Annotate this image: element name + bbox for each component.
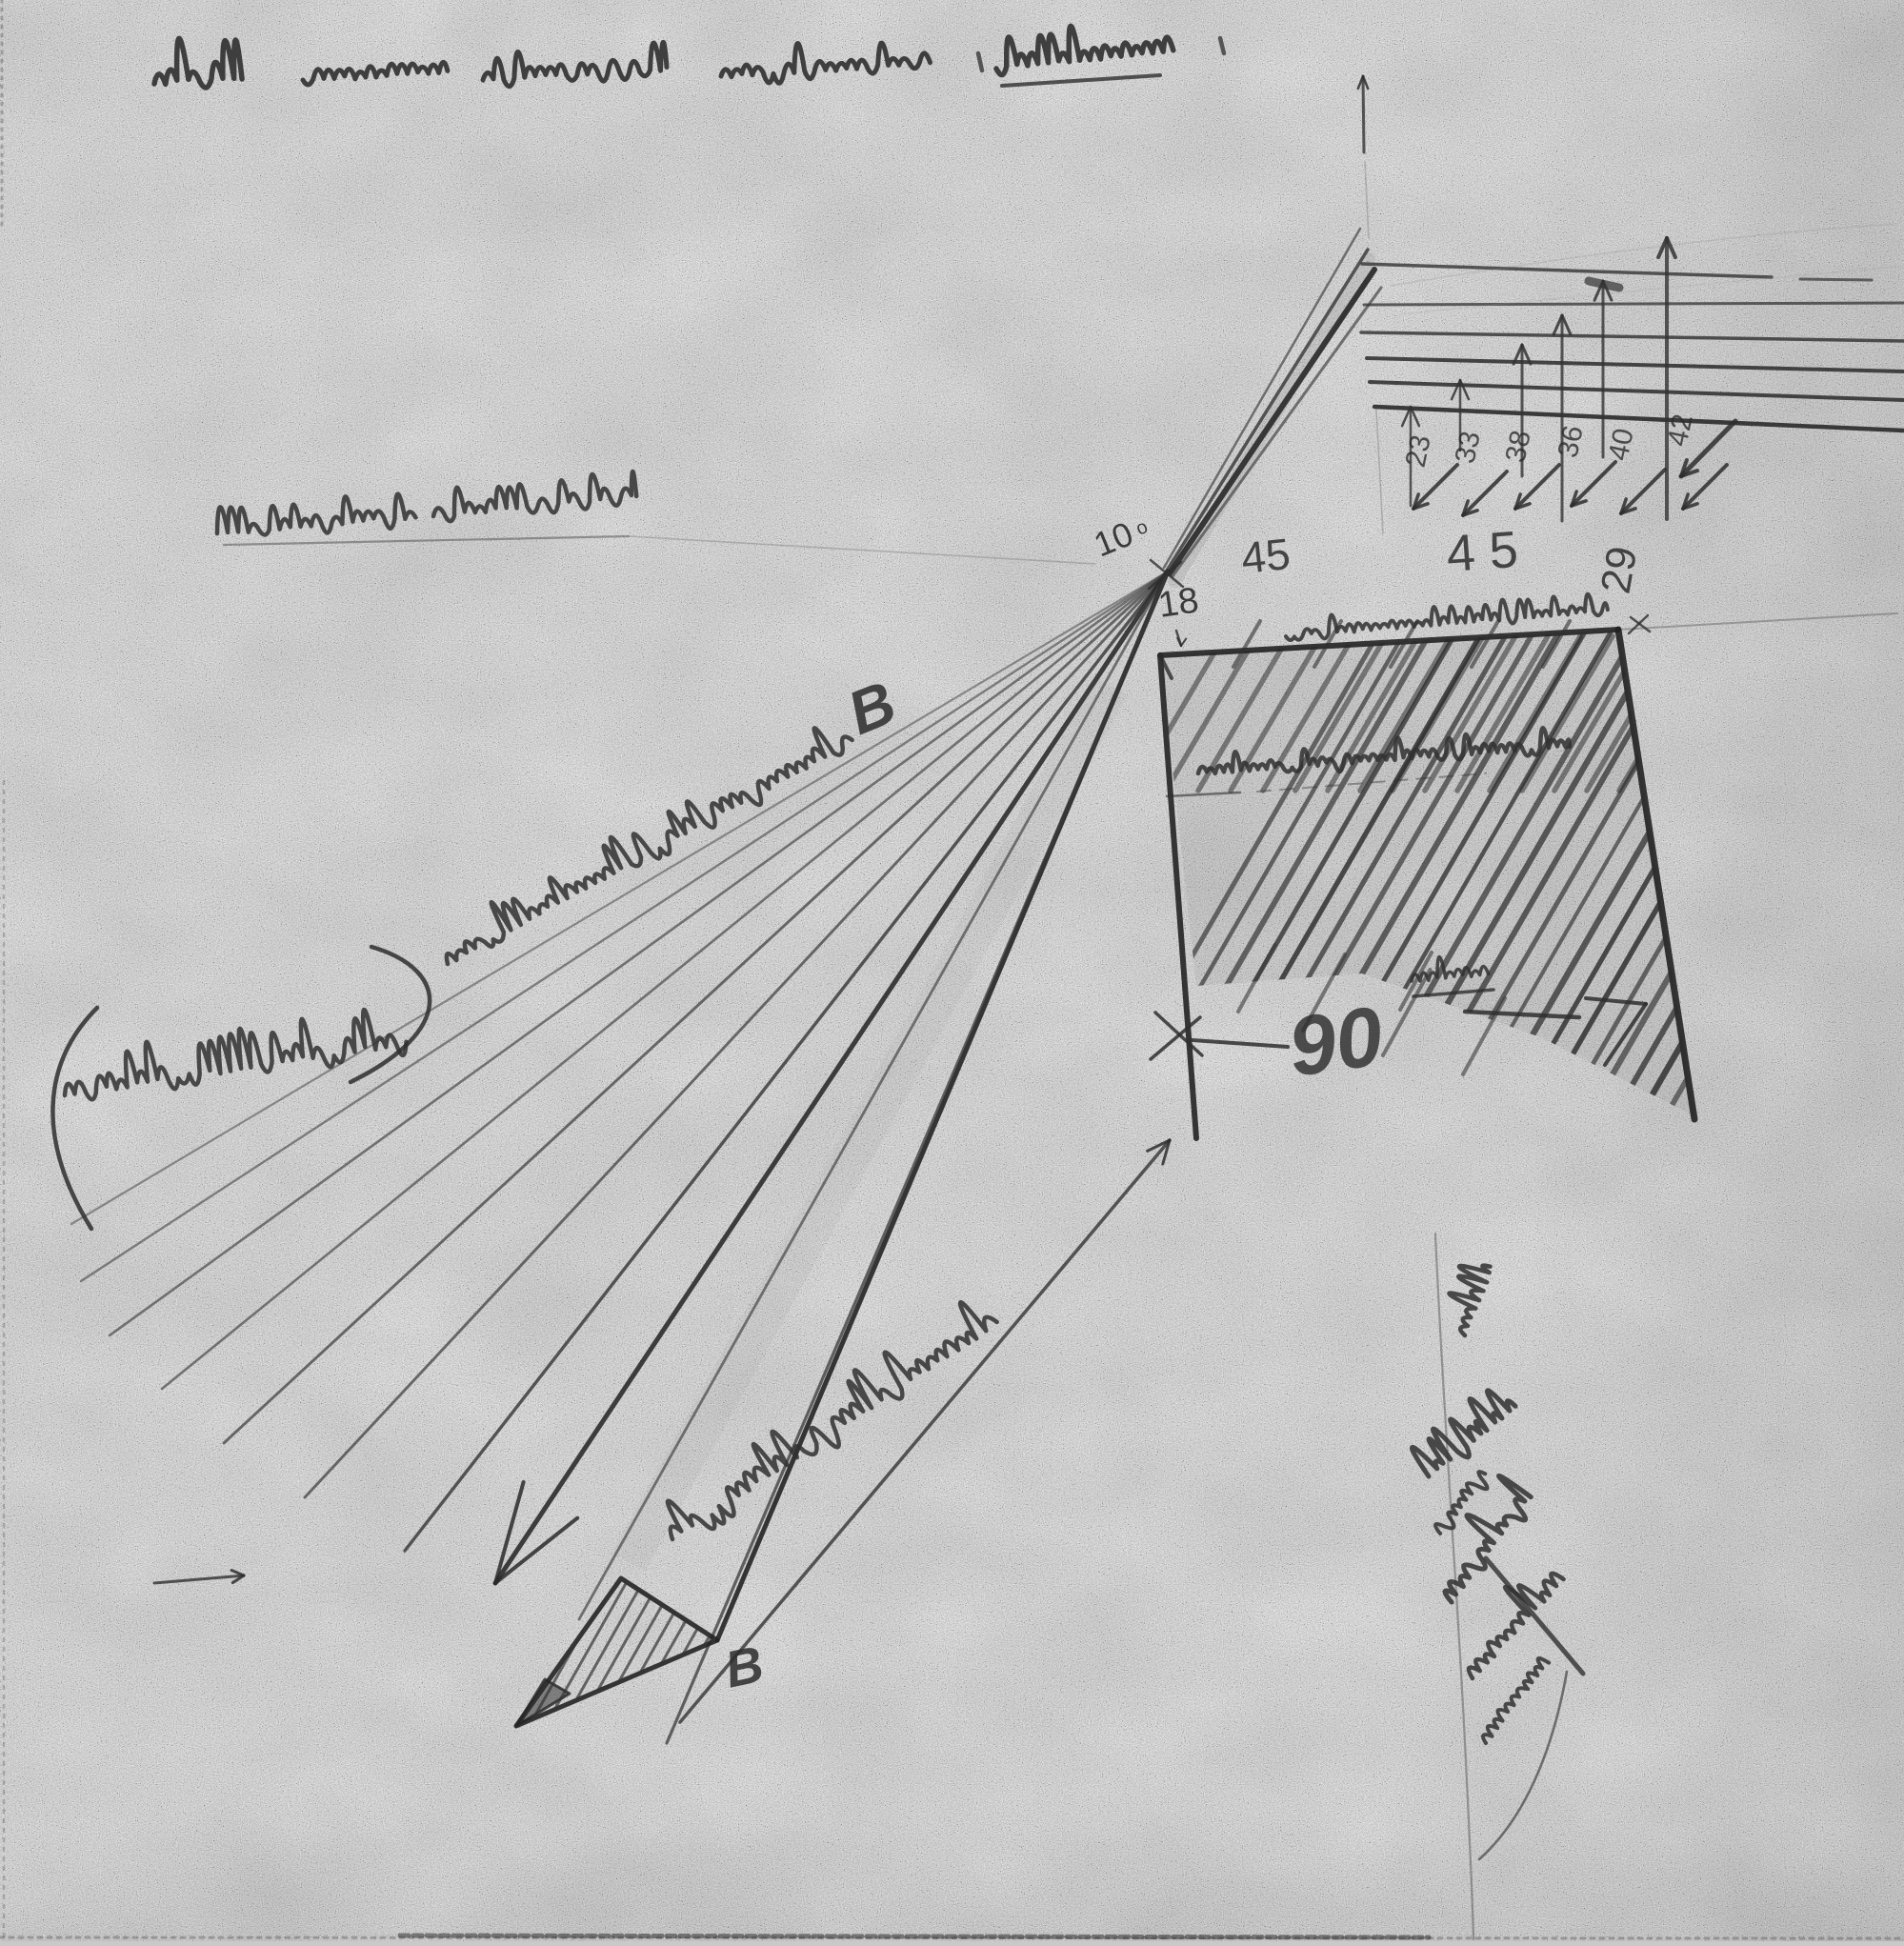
svg-text:90: 90 [1283, 988, 1389, 1094]
svg-text:40: 40 [1603, 426, 1640, 464]
svg-text:23: 23 [1400, 432, 1437, 471]
svg-text:29: 29 [1593, 543, 1647, 597]
svg-text:45: 45 [1239, 529, 1293, 583]
svg-text:33: 33 [1450, 429, 1487, 467]
svg-text:4 5: 4 5 [1445, 521, 1520, 583]
svg-text:42: 42 [1662, 411, 1699, 450]
svg-text:36: 36 [1553, 423, 1590, 461]
svg-text:18: 18 [1155, 580, 1201, 625]
svg-text:38: 38 [1500, 428, 1537, 466]
